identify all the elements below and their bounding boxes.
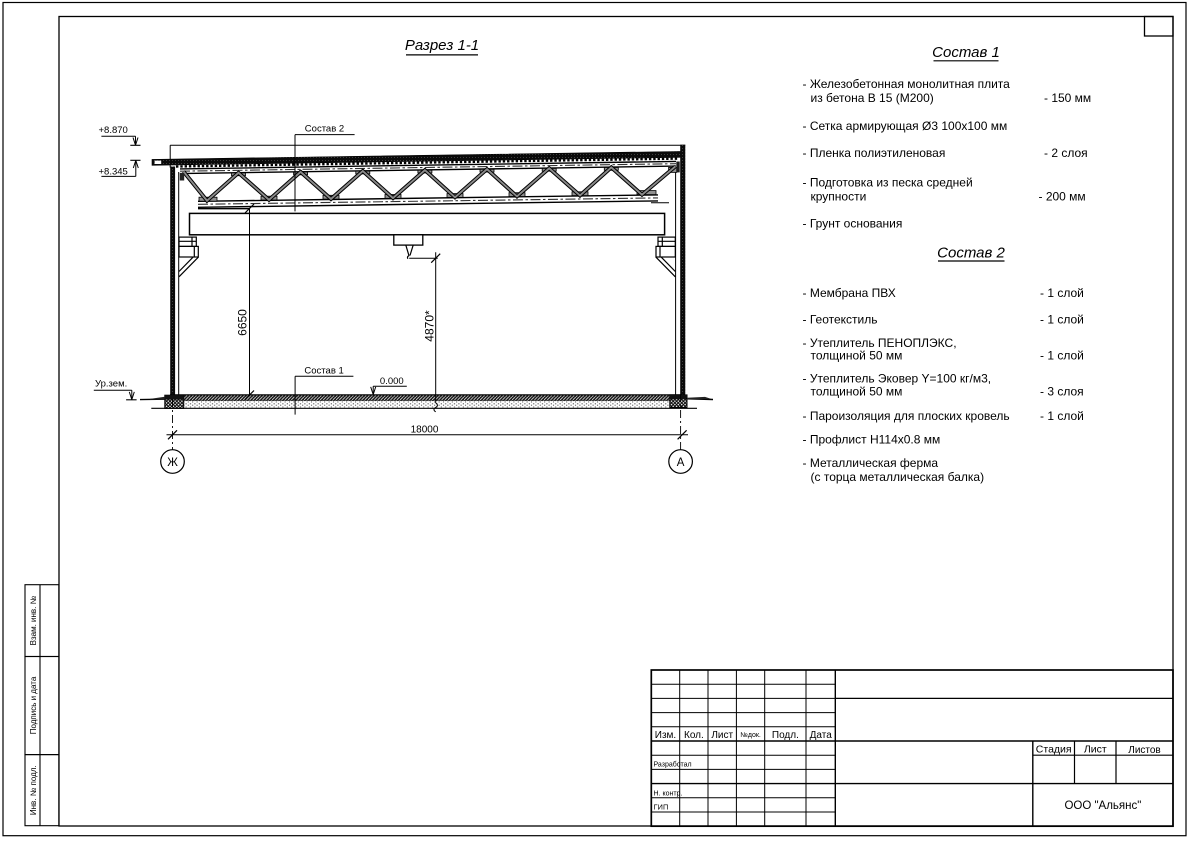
svg-text:6650: 6650 xyxy=(235,309,249,336)
svg-text:+8.870: +8.870 xyxy=(99,125,128,136)
svg-text:0.000: 0.000 xyxy=(380,376,404,387)
svg-text:- Подготовка из песка средней: - Подготовка из песка средней xyxy=(803,176,973,190)
svg-text:А: А xyxy=(677,457,685,469)
svg-text:(с торца металлическая балка): (с торца металлическая балка) xyxy=(811,470,985,484)
svg-text:Листов: Листов xyxy=(1128,745,1161,756)
svg-text:Взам. инв. №: Взам. инв. № xyxy=(29,595,38,645)
svg-text:- 1 слой: - 1 слой xyxy=(1040,286,1084,300)
svg-text:- Утеплитель Эковер Y=100 кг/м: - Утеплитель Эковер Y=100 кг/м3, xyxy=(803,372,992,386)
svg-text:- 2 слоя: - 2 слоя xyxy=(1044,146,1088,160)
svg-text:Инв. № подл.: Инв. № подл. xyxy=(29,765,38,815)
svg-text:толщиной 50 мм: толщиной 50 мм xyxy=(811,385,903,399)
svg-text:Ж: Ж xyxy=(167,457,178,469)
svg-text:- 3 слоя: - 3 слоя xyxy=(1040,385,1084,399)
svg-text:- 150 мм: - 150 мм xyxy=(1044,91,1091,105)
svg-text:Разрез 1-1: Разрез 1-1 xyxy=(405,37,479,54)
svg-text:- Металлическая ферма: - Металлическая ферма xyxy=(803,456,939,470)
svg-text:- Мембрана ПВХ: - Мембрана ПВХ xyxy=(803,286,896,300)
svg-text:№док.: №док. xyxy=(740,732,761,739)
svg-text:толщиной 50 мм: толщиной 50 мм xyxy=(811,349,903,363)
svg-text:Подл.: Подл. xyxy=(772,730,799,741)
svg-text:Состав 2: Состав 2 xyxy=(305,123,344,134)
svg-text:4870*: 4870* xyxy=(423,310,437,342)
svg-text:Состав 1: Состав 1 xyxy=(304,366,343,377)
svg-text:- Сетка армирующая Ø3 100х100: - Сетка армирующая Ø3 100х100 мм xyxy=(803,119,1008,133)
svg-text:- Железобетонная монолитная п: - Железобетонная монолитная плита xyxy=(803,77,1011,91)
svg-text:- Геотекстиль: - Геотекстиль xyxy=(803,313,878,327)
svg-text:Разработал: Разработал xyxy=(654,761,692,769)
svg-text:- 1 слой: - 1 слой xyxy=(1040,409,1084,423)
svg-text:ГИП: ГИП xyxy=(654,803,669,812)
svg-text:- 200 мм: - 200 мм xyxy=(1039,190,1086,204)
svg-text:ООО "Альянс": ООО "Альянс" xyxy=(1064,800,1141,812)
svg-text:Лист: Лист xyxy=(1084,744,1107,756)
svg-text:- Пароизоляция для плоских кро: - Пароизоляция для плоских кровель xyxy=(803,409,1010,423)
svg-text:из бетона В 15 (М200): из бетона В 15 (М200) xyxy=(811,91,934,105)
svg-text:Дата: Дата xyxy=(810,730,833,741)
svg-text:Стадия: Стадия xyxy=(1036,744,1072,756)
svg-text:- Пленка полиэтиленовая: - Пленка полиэтиленовая xyxy=(803,146,946,160)
svg-text:+8.345: +8.345 xyxy=(99,166,128,177)
svg-text:18000: 18000 xyxy=(411,424,439,435)
svg-text:Н. контр.: Н. контр. xyxy=(654,790,683,797)
svg-text:Состав 1: Состав 1 xyxy=(932,44,1000,61)
svg-text:- 1 слой: - 1 слой xyxy=(1040,313,1084,327)
svg-text:Кол.: Кол. xyxy=(684,730,704,741)
svg-text:Подпись и дата: Подпись и дата xyxy=(29,676,38,734)
svg-text:- 1 слой: - 1 слой xyxy=(1040,349,1084,363)
svg-text:Лист: Лист xyxy=(711,730,733,741)
svg-text:крупности: крупности xyxy=(811,190,867,204)
svg-text:Изм.: Изм. xyxy=(655,730,676,741)
svg-text:Состав 2: Состав 2 xyxy=(937,244,1005,261)
svg-text:- Грунт основания: - Грунт основания xyxy=(803,217,903,231)
svg-text:Ур.зем.: Ур.зем. xyxy=(95,379,127,390)
svg-text:- Профлист Н114х0.8 мм: - Профлист Н114х0.8 мм xyxy=(803,433,941,447)
